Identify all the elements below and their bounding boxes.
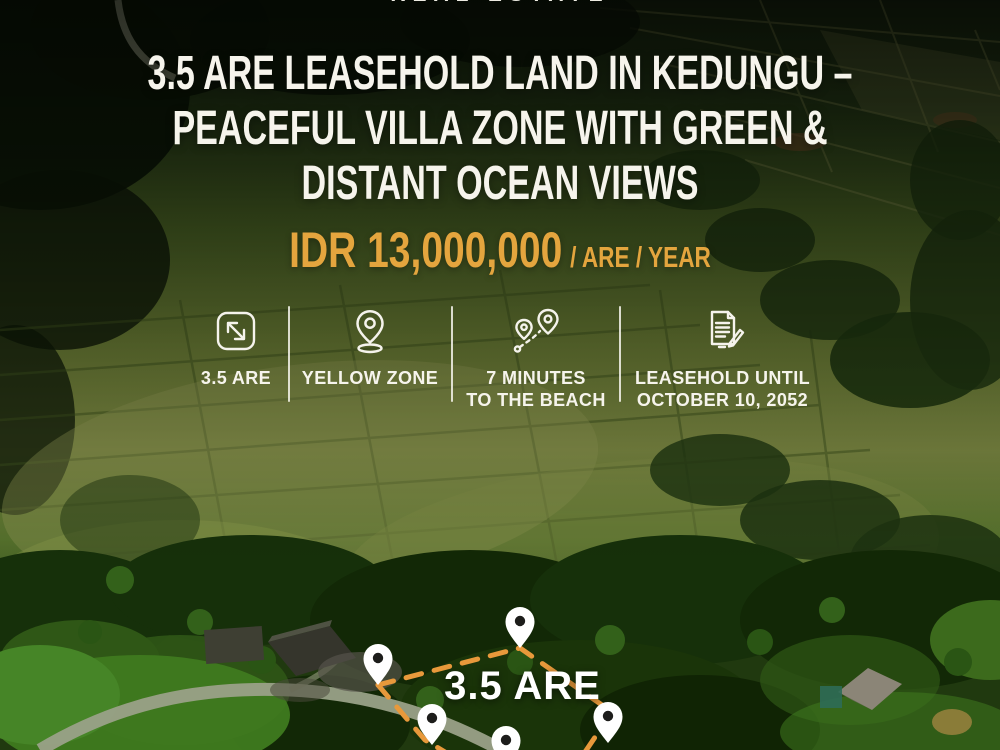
feature-label: 7 MINUTES TO THE BEACH: [446, 367, 626, 411]
feature-strip: 3.5 ARE YELLOW ZONE: [0, 0, 1000, 750]
feature-divider: [288, 306, 290, 402]
feature-zone: YELLOW ZONE: [290, 302, 450, 389]
plot-area-label: 3.5 ARE: [425, 664, 620, 709]
location-pin-icon: [290, 302, 450, 360]
feature-label: YELLOW ZONE: [290, 367, 450, 389]
feature-divider: [451, 306, 453, 402]
route-distance-icon: [446, 302, 626, 360]
feature-divider: [619, 306, 621, 402]
listing-poster: REAL ESTATE 3.5 ARE LEASEHOLD LAND IN KE…: [0, 0, 1000, 750]
feature-leasehold: LEASEHOLD UNTIL OCTOBER 10, 2052: [630, 302, 815, 411]
leasehold-document-icon: [630, 302, 815, 360]
feature-beach-distance: 7 MINUTES TO THE BEACH: [446, 302, 626, 411]
feature-label: LEASEHOLD UNTIL OCTOBER 10, 2052: [630, 367, 815, 411]
